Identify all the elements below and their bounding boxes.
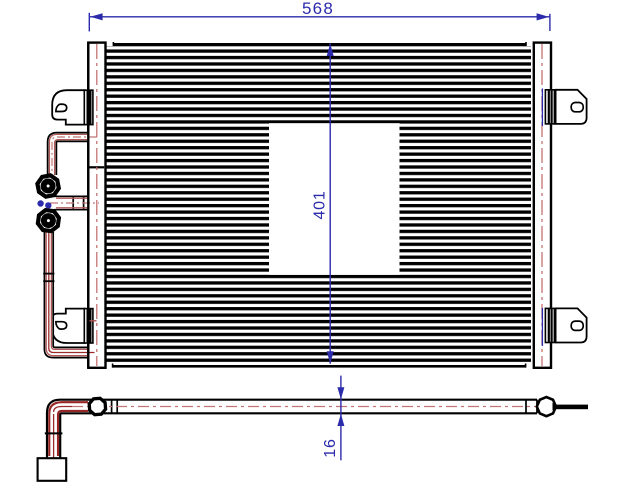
svg-text:401: 401 <box>312 190 329 219</box>
svg-text:16: 16 <box>322 438 339 457</box>
svg-text:568: 568 <box>302 0 334 18</box>
